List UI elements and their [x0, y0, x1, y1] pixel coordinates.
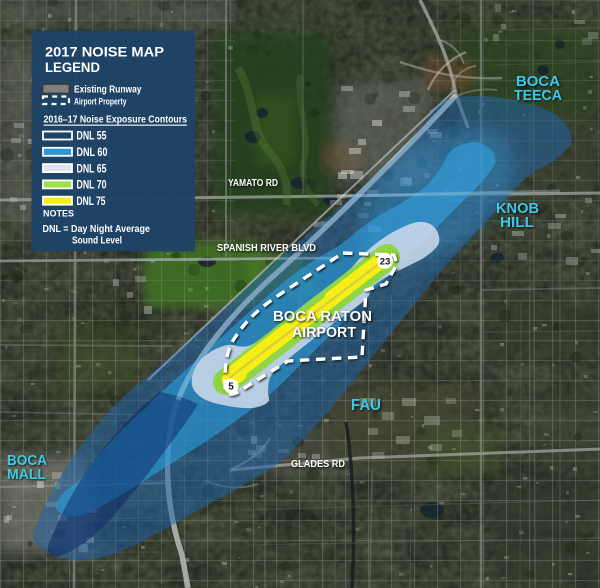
svg-text:DNL 55: DNL 55	[77, 131, 107, 143]
svg-text:TEECA: TEECA	[514, 88, 563, 104]
svg-text:DNL 60: DNL 60	[77, 147, 108, 159]
svg-text:HILL: HILL	[500, 215, 534, 231]
svg-text:5: 5	[228, 382, 234, 393]
svg-text:LEGEND: LEGEND	[45, 60, 100, 75]
svg-text:DNL 75: DNL 75	[77, 196, 106, 208]
svg-text:GLADES RD: GLADES RD	[291, 458, 345, 470]
svg-text:YAMATO RD: YAMATO RD	[228, 177, 278, 189]
svg-text:NOTES: NOTES	[43, 209, 74, 220]
svg-text:DNL = Day Night Average: DNL = Day Night Average	[43, 223, 151, 235]
svg-text:Existing Runway: Existing Runway	[74, 85, 142, 96]
svg-text:SPANISH RIVER BLVD: SPANISH RIVER BLVD	[217, 242, 316, 254]
svg-text:BOCA RATON: BOCA RATON	[273, 309, 372, 325]
svg-text:Sound Level: Sound Level	[72, 235, 122, 247]
svg-text:AIRPORT: AIRPORT	[292, 325, 356, 341]
svg-text:MALL: MALL	[7, 467, 46, 483]
svg-text:23: 23	[380, 257, 391, 268]
svg-text:2016–17 Noise Exposure Contour: 2016–17 Noise Exposure Contours	[44, 114, 188, 126]
svg-text:DNL 70: DNL 70	[77, 180, 107, 192]
svg-text:DNL 65: DNL 65	[77, 163, 107, 175]
svg-text:Airport Property: Airport Property	[74, 97, 127, 108]
svg-text:FAU: FAU	[351, 397, 381, 414]
svg-text:2017 NOISE MAP: 2017 NOISE MAP	[45, 45, 164, 60]
